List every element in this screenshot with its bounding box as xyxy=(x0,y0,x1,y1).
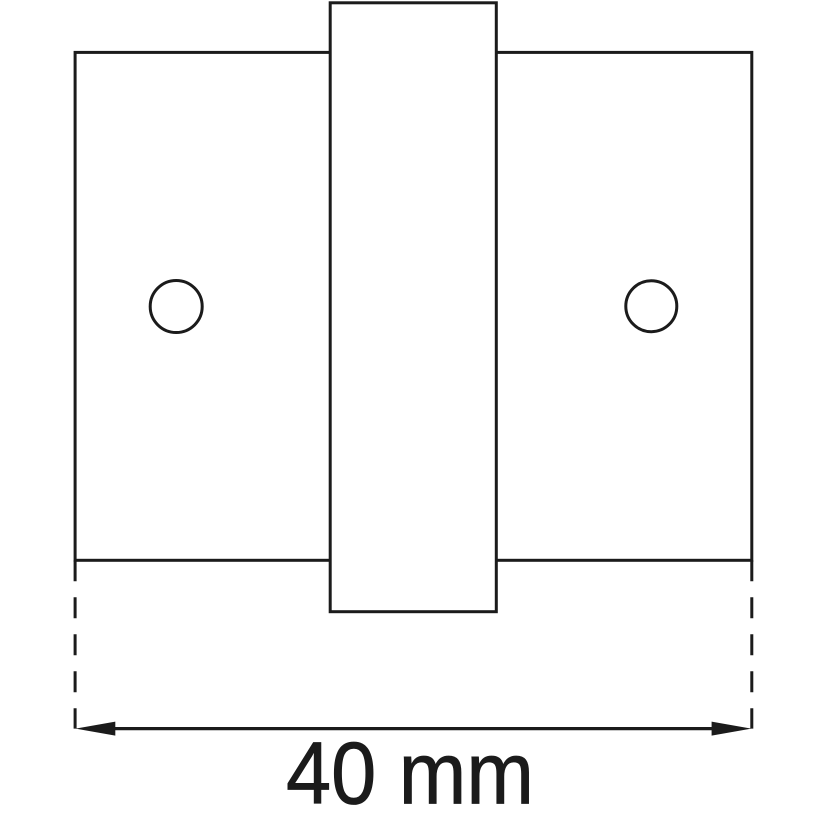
svg-text:40 mm: 40 mm xyxy=(286,724,534,823)
